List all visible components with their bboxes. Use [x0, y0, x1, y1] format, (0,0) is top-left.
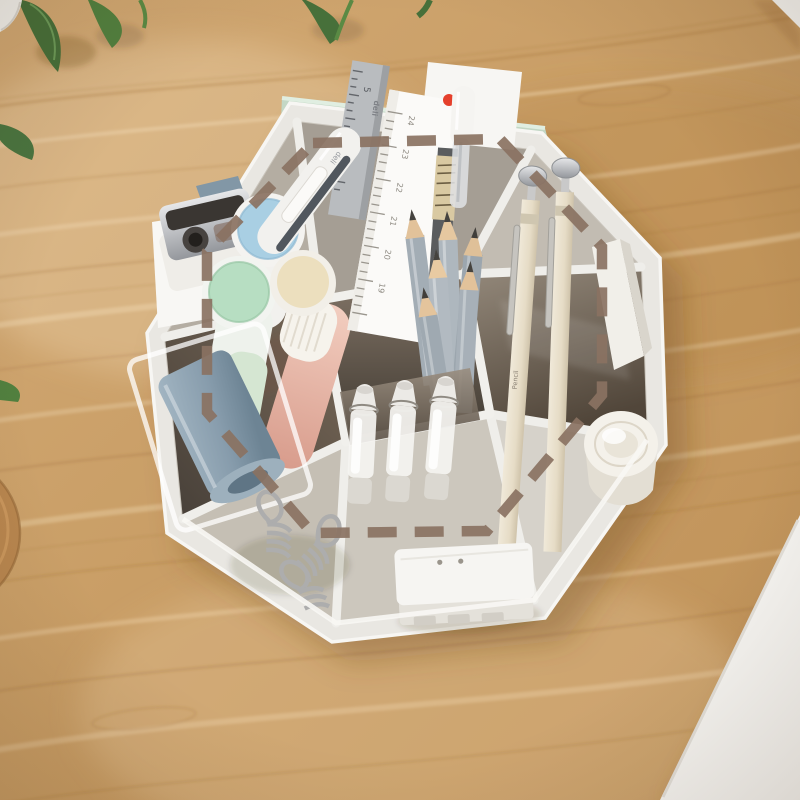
photo-scene: 5 deli 24 23	[0, 0, 800, 800]
scene-svg: 5 deli 24 23	[0, 0, 800, 800]
vignette	[0, 0, 800, 800]
